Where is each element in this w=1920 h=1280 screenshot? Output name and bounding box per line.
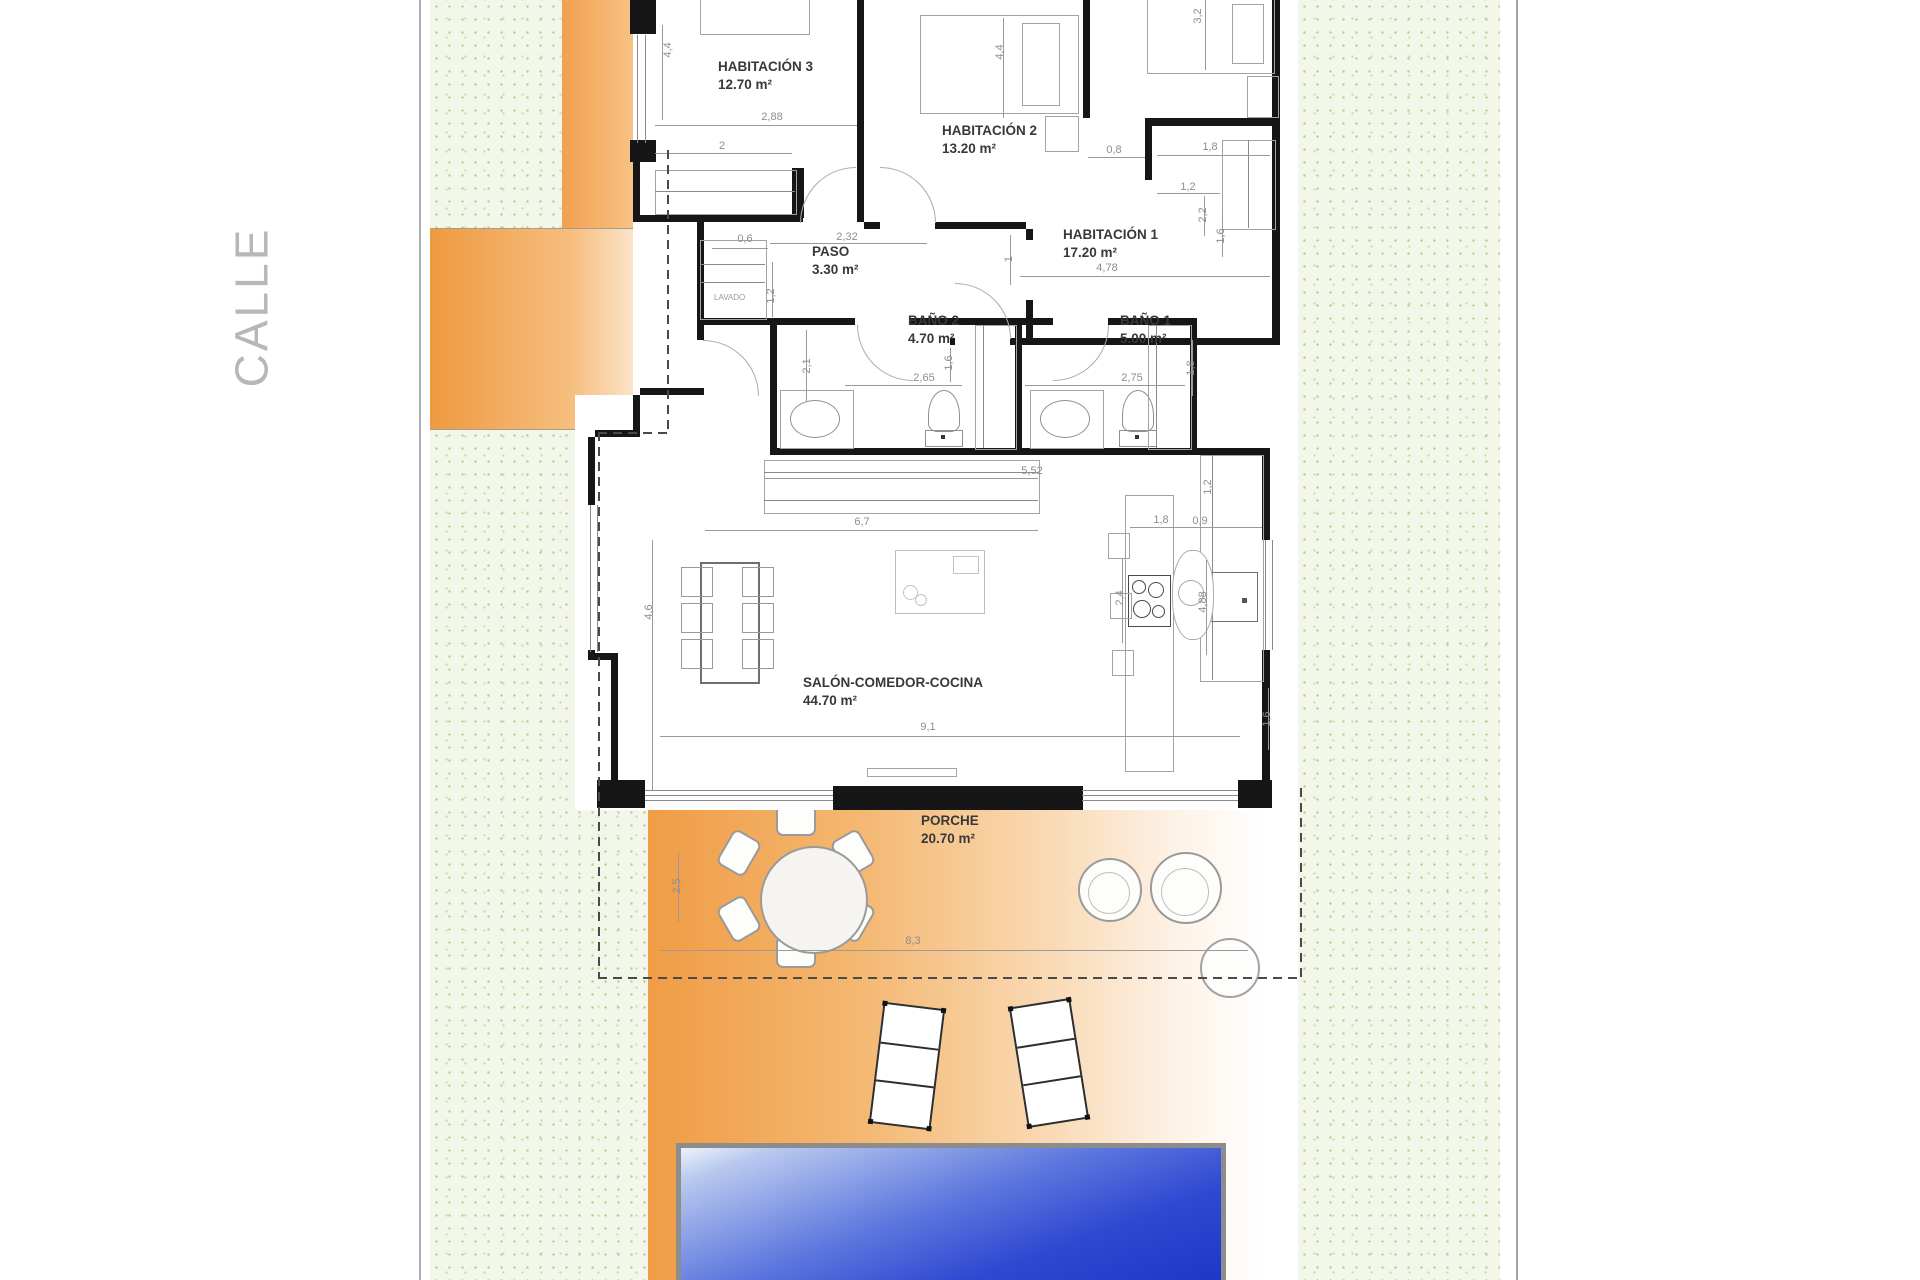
- room-label-paso: PASO3.30 m²: [812, 243, 859, 279]
- dimension-label: 8,3: [905, 935, 920, 947]
- plot-boundary-right: [1516, 0, 1518, 1280]
- room-name: SALÓN-COMEDOR-COCINA: [803, 674, 983, 692]
- dimension-label: 2,75: [1121, 372, 1142, 384]
- dimension-line: [845, 385, 962, 386]
- window: [637, 35, 638, 143]
- round-chair-inner: [1088, 872, 1130, 914]
- dimension-line: [1025, 385, 1185, 386]
- sliding-door-track: [867, 768, 957, 777]
- dimension-label: 2,88: [761, 111, 782, 123]
- room-area: 17.20 m²: [1063, 244, 1158, 262]
- sink-basin: [1040, 400, 1090, 438]
- wardrobe: [655, 170, 797, 215]
- window: [1272, 540, 1273, 650]
- wardrobe: [1222, 140, 1276, 230]
- dimension-label: 2,1: [801, 358, 813, 373]
- room-label-habitacion-1: HABITACIÓN 117.20 m²: [1063, 226, 1158, 262]
- laundry-label: LAVADO: [714, 293, 745, 302]
- lounger-divider: [1023, 1075, 1081, 1086]
- sideboard: [764, 460, 1040, 514]
- lounger-corner: [1066, 997, 1072, 1003]
- plot-boundary-left: [419, 0, 421, 1280]
- dimension-label: 2,2: [1197, 207, 1209, 222]
- bed-pillow: [1022, 23, 1060, 106]
- window: [645, 800, 833, 801]
- room-area: 12.70 m²: [718, 76, 813, 94]
- room-area: 4.70 m²: [908, 330, 959, 348]
- bed: [700, 0, 810, 35]
- wardrobe-line: [655, 191, 795, 192]
- dimension-label: 4,6: [643, 604, 655, 619]
- burner: [1152, 605, 1165, 618]
- dining-chair: [681, 567, 713, 597]
- wall: [935, 222, 1026, 229]
- setback-line: [1300, 788, 1302, 979]
- dining-chair: [742, 639, 774, 669]
- sideboard-line: [764, 472, 1038, 473]
- closet-shelf: [700, 264, 765, 265]
- room-label-salon-comedor-cocina: SALÓN-COMEDOR-COCINA44.70 m²: [803, 674, 983, 710]
- wall: [640, 388, 704, 395]
- room-area: 13.20 m²: [942, 140, 1037, 158]
- setback-line: [667, 150, 669, 432]
- wall: [864, 222, 880, 229]
- dimension-label: 1,2: [765, 288, 777, 303]
- window: [645, 790, 833, 791]
- dimension-label: 2,4: [1114, 590, 1126, 605]
- street-label-wrap: CALLE: [176, 232, 326, 382]
- dimension-label: 0,9: [1192, 515, 1207, 527]
- setback-line: [598, 977, 1300, 979]
- rug-item: [953, 556, 979, 574]
- wall: [1026, 229, 1033, 240]
- dimension-label: 4,4: [994, 44, 1006, 59]
- appliance-dot: [1242, 598, 1247, 603]
- dimension-line: [1205, 0, 1206, 70]
- dimension-label: 1,2: [1202, 479, 1214, 494]
- lounger-corner: [941, 1008, 947, 1014]
- lounger-divider: [881, 1042, 939, 1051]
- street-label: CALLE: [224, 227, 278, 388]
- pool: [676, 1143, 1226, 1280]
- dimension-label: 9,1: [920, 721, 935, 733]
- garden-right: [1298, 0, 1500, 1280]
- room-label-bano-2: BAÑO 24.70 m²: [908, 312, 959, 348]
- dimension-line: [1003, 18, 1004, 118]
- wall: [1238, 780, 1272, 808]
- dimension-line: [712, 248, 768, 249]
- wall: [588, 437, 595, 505]
- burner: [1148, 582, 1164, 598]
- room-name: PORCHE: [921, 812, 979, 830]
- dimension-label: 1,2: [1180, 181, 1195, 193]
- window: [1082, 795, 1238, 796]
- dimension-label: 1,6: [943, 355, 955, 370]
- dining-chair: [742, 603, 774, 633]
- rug-item: [915, 594, 927, 606]
- dimension-line: [764, 478, 1038, 479]
- round-chair-inner: [1161, 868, 1209, 916]
- toilet-button: [941, 435, 945, 439]
- room-name: HABITACIÓN 1: [1063, 226, 1158, 244]
- set back-line: [598, 432, 667, 434]
- lounger-corner: [868, 1119, 874, 1125]
- room-label-bano-1: BAÑO 15.00 m²: [1120, 312, 1171, 348]
- wall: [1145, 118, 1280, 126]
- wall: [633, 215, 803, 222]
- setback-line: [598, 432, 600, 977]
- dimension-label: 1,8: [1202, 141, 1217, 153]
- wall: [588, 653, 618, 660]
- burner: [1133, 600, 1151, 618]
- dining-chair: [681, 639, 713, 669]
- room-name: HABITACIÓN 3: [718, 58, 813, 76]
- room-label-porche: PORCHE20.70 m²: [921, 812, 979, 848]
- room-name: BAÑO 1: [1120, 312, 1171, 330]
- window: [1265, 540, 1266, 650]
- dining-chair: [681, 603, 713, 633]
- shower-glass: [983, 325, 984, 448]
- room-name: PASO: [812, 243, 859, 261]
- lounger-corner: [1008, 1006, 1014, 1012]
- room-area: 5.00 m²: [1120, 330, 1171, 348]
- dimension-line: [652, 540, 653, 790]
- dimension-line: [1088, 157, 1145, 158]
- closet-shelf: [700, 282, 765, 283]
- room-area: 3.30 m²: [812, 261, 859, 279]
- room-label-habitacion-2: HABITACIÓN 213.20 m²: [942, 122, 1037, 158]
- lounger-divider: [876, 1079, 934, 1088]
- dimension-line: [1130, 527, 1262, 528]
- wall: [611, 660, 618, 790]
- dimension-label: 1,6: [1261, 711, 1273, 726]
- shower: [975, 325, 1017, 450]
- room-label-habitacion-3: HABITACIÓN 312.70 m²: [718, 58, 813, 94]
- wall: [1145, 118, 1152, 180]
- side-table: [1200, 938, 1260, 998]
- dimension-label: 1,6: [1215, 228, 1227, 243]
- room-name: BAÑO 2: [908, 312, 959, 330]
- dimension-line: [705, 530, 1038, 531]
- room-area: 20.70 m²: [921, 830, 979, 848]
- room-area: 44.70 m²: [803, 692, 983, 710]
- dimension-label: 1: [1003, 256, 1015, 262]
- window: [590, 505, 591, 652]
- dimension-label: 1,8: [1153, 514, 1168, 526]
- dimension-label: 1,8: [1185, 360, 1197, 375]
- bar-stool: [1112, 650, 1134, 676]
- dimension-label: 6,7: [854, 516, 869, 528]
- dimension-label: 2,5: [671, 878, 683, 893]
- dining-chair: [742, 567, 774, 597]
- toilet: [928, 390, 960, 432]
- dimension-line: [655, 125, 857, 126]
- window: [1082, 790, 1238, 791]
- dimension-line: [655, 153, 792, 154]
- dimension-label: 2,32: [836, 231, 857, 243]
- dimension-label: 4,78: [1096, 262, 1117, 274]
- dimension-label: 2,65: [913, 372, 934, 384]
- window: [645, 795, 833, 796]
- dimension-label: 4,4: [662, 42, 674, 57]
- dimension-label: 3,2: [1192, 8, 1204, 23]
- nightstand: [1045, 116, 1079, 152]
- bed-pillow: [1232, 4, 1264, 64]
- dimension-line: [1157, 193, 1220, 194]
- wall: [857, 0, 864, 222]
- burner: [1132, 580, 1146, 594]
- toilet-button: [1135, 435, 1139, 439]
- lounger-corner: [1026, 1124, 1032, 1130]
- wall: [633, 158, 640, 222]
- lounger-divider: [1017, 1038, 1075, 1049]
- floor-plan: CALLE: [0, 0, 1920, 1280]
- dimension-line: [662, 25, 663, 120]
- wall: [630, 0, 656, 34]
- room-name: HABITACIÓN 2: [942, 122, 1037, 140]
- dimension-line: [1020, 276, 1270, 277]
- dimension-label: 2: [719, 140, 725, 152]
- lounger-corner: [926, 1126, 932, 1132]
- wall: [1083, 0, 1090, 118]
- wardrobe-line: [1248, 140, 1249, 228]
- dimension-label: 0,6: [737, 233, 752, 245]
- dimension-label: 5,52: [1021, 465, 1042, 477]
- sink-basin: [790, 400, 840, 438]
- dimension-line: [660, 736, 1240, 737]
- dimension-line: [660, 950, 1248, 951]
- lounger-corner: [882, 1001, 888, 1007]
- dimension-label: 4,88: [1197, 591, 1209, 612]
- nightstand: [1247, 76, 1279, 118]
- wall: [597, 780, 645, 808]
- wall: [833, 786, 1083, 810]
- window: [1082, 800, 1238, 801]
- wall: [770, 318, 777, 455]
- laundry-closet: [700, 240, 767, 320]
- lounger-corner: [1085, 1114, 1091, 1120]
- window: [645, 35, 646, 143]
- porch-table: [760, 846, 868, 954]
- dimension-label: 0,8: [1106, 144, 1121, 156]
- bar-stool: [1108, 533, 1130, 559]
- kitchen-island: [1125, 495, 1174, 772]
- sideboard-line: [764, 500, 1038, 501]
- dimension-line: [1157, 155, 1270, 156]
